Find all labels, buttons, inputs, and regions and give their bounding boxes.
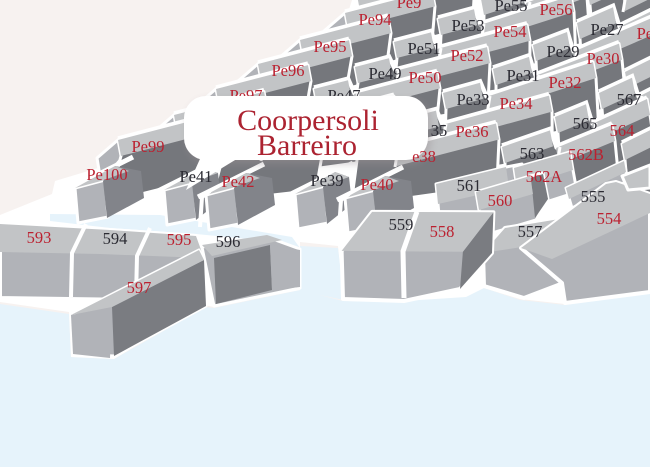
svg-text:562A: 562A [526,167,563,186]
svg-text:Pe30: Pe30 [587,49,620,68]
svg-text:Pe49: Pe49 [369,64,402,83]
svg-text:554: 554 [597,209,622,228]
svg-text:Pe40: Pe40 [361,175,394,194]
svg-text:563: 563 [520,144,545,163]
svg-text:555: 555 [581,187,606,206]
svg-text:Pe95: Pe95 [314,37,347,56]
svg-text:561: 561 [457,176,482,195]
svg-text:Pe29: Pe29 [547,42,580,61]
svg-text:35: 35 [431,121,448,140]
svg-text:Pe54: Pe54 [494,22,527,41]
svg-text:Pe55: Pe55 [495,0,528,15]
svg-text:Pe34: Pe34 [500,94,533,113]
svg-text:597: 597 [127,278,152,297]
svg-text:Pe32: Pe32 [549,73,582,92]
svg-text:559: 559 [389,215,414,234]
svg-text:593: 593 [27,228,52,247]
svg-text:557: 557 [518,222,543,241]
svg-text:565: 565 [573,114,598,133]
svg-text:Pe42: Pe42 [222,172,255,191]
svg-text:Barreiro: Barreiro [257,129,357,162]
svg-text:e38: e38 [412,147,436,166]
svg-text:558: 558 [430,222,455,241]
svg-text:Pe94: Pe94 [359,10,392,29]
svg-text:Pe51: Pe51 [408,39,441,58]
svg-text:Pe50: Pe50 [409,68,442,87]
svg-text:Pe39: Pe39 [311,171,344,190]
svg-text:Pe56: Pe56 [540,0,573,19]
svg-text:Pe36: Pe36 [456,122,489,141]
svg-text:564: 564 [610,121,635,140]
svg-text:Pe99: Pe99 [132,137,165,156]
svg-text:Pe33: Pe33 [457,90,490,109]
svg-text:Pe53: Pe53 [452,16,485,35]
svg-text:595: 595 [167,230,192,249]
svg-text:Pe41: Pe41 [180,167,213,186]
svg-text:562B: 562B [568,145,604,164]
svg-text:567: 567 [617,90,642,109]
svg-text:Pe52: Pe52 [451,46,484,65]
svg-text:596: 596 [216,232,241,251]
svg-text:Pe27: Pe27 [591,20,624,39]
svg-text:560: 560 [488,191,513,210]
svg-text:Pe9: Pe9 [397,0,422,12]
svg-text:Pe100: Pe100 [86,165,127,184]
svg-text:Pe96: Pe96 [272,61,305,80]
svg-text:594: 594 [103,229,128,248]
svg-text:Pe2: Pe2 [637,24,650,43]
svg-text:Pe31: Pe31 [507,66,540,85]
